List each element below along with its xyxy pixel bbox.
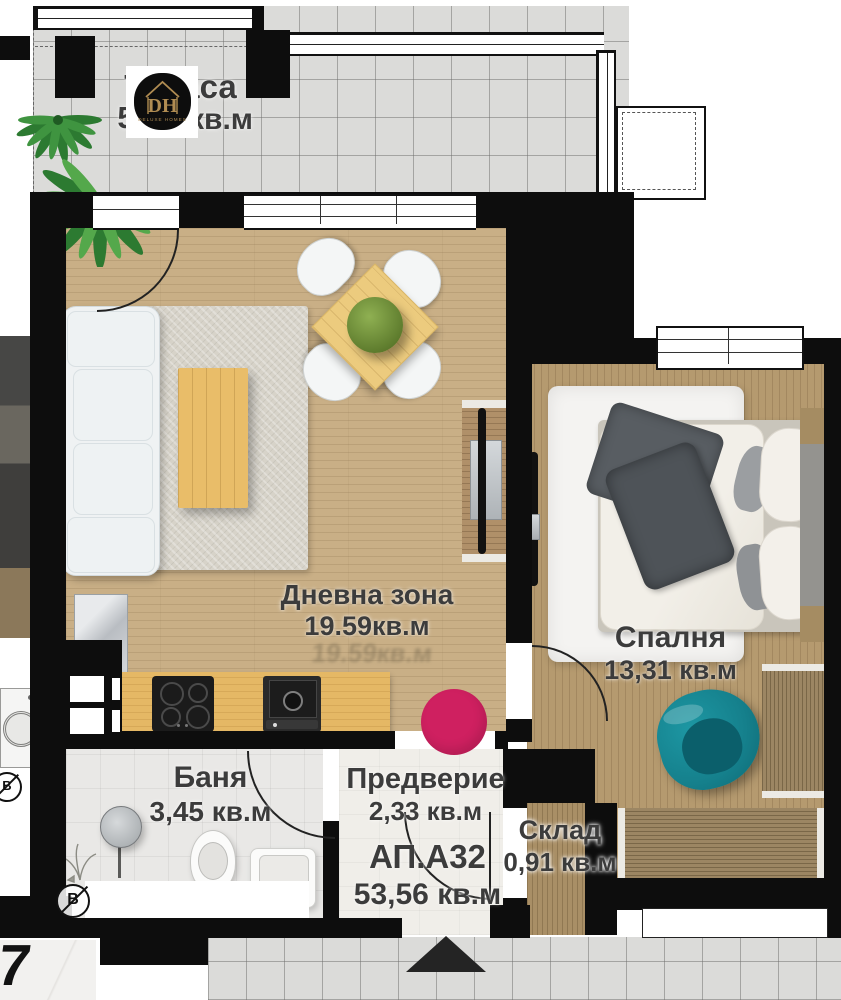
sofa-cushion (73, 443, 153, 515)
floor-plan: В В Тераса 5 кв.м Дневна зона 19.59кв.м … (0, 0, 841, 1000)
wall-bath-bottom (30, 918, 402, 938)
wardrobe-cap (762, 791, 824, 798)
window-mullion (396, 196, 397, 224)
console-cap (462, 400, 508, 408)
tv-screen (478, 408, 486, 554)
entry-name: Предверие (333, 762, 518, 796)
coffee-table (178, 368, 248, 508)
tv-bracket (470, 440, 502, 520)
shaft-slot (112, 678, 120, 700)
window-mullion (728, 328, 729, 364)
bottom-window-strip (642, 908, 828, 938)
neighbor-terrace-dashed (622, 112, 696, 190)
terrace-railing-mid (258, 32, 604, 56)
burner (186, 705, 210, 729)
bedroom-area: 13,31 кв.м (568, 655, 773, 687)
boiler-symbol-icon: В (56, 884, 90, 918)
wardrobe-bottom (618, 808, 824, 880)
kitchen-sink-unit (263, 676, 321, 732)
edge-wall-stub (0, 36, 30, 60)
cooktop (152, 676, 214, 732)
living-window (244, 194, 476, 230)
unit-dot (273, 723, 277, 727)
terrace-railing-right (596, 50, 616, 199)
bedroom-window (656, 326, 804, 370)
neighbor-floor-sliver (0, 568, 30, 638)
neighbor-room-sliver (0, 336, 30, 568)
logo-initials: DH (148, 95, 178, 117)
living-room-name: Дневна зона (262, 578, 472, 611)
cooktop-knob (177, 724, 180, 727)
living-room-label: Дневна зона 19.59кв.м (262, 578, 472, 643)
burner (188, 683, 208, 703)
bedroom-name: Спалня (568, 620, 773, 655)
lower-terrace-floor (208, 937, 841, 1000)
wall-bedroom-bottom (617, 878, 829, 910)
apartment-total-area: 53,56 кв.м (330, 877, 525, 912)
cooktop-knob (185, 724, 188, 727)
sofa-armrest (67, 311, 155, 367)
wall-storage-top (527, 749, 595, 803)
shaft-opening (70, 676, 104, 702)
burner (160, 682, 184, 706)
bath-label: Баня 3,45 кв.м (118, 760, 303, 828)
logo-graphic: DH DELUXE HOMES (126, 66, 198, 138)
boiler-symbol-icon: В (0, 772, 22, 802)
shaft-opening (70, 708, 104, 734)
terrace-railing-top (33, 6, 262, 30)
deluxe-homes-logo: DH DELUXE HOMES (126, 66, 198, 138)
wall-bottom-chunk (100, 937, 208, 965)
logo-name: DELUXE HOMES (138, 117, 187, 122)
wardrobe-cap (817, 808, 824, 880)
bedroom-label: Спалня 13,31 кв.м (568, 620, 773, 687)
storage-name: Склад (478, 815, 642, 847)
bath-area: 3,45 кв.м (118, 795, 303, 828)
entrance-marker-dot (421, 689, 487, 755)
window-mullion (320, 196, 321, 224)
wall-right (824, 338, 841, 938)
triangle-marker-icon (406, 936, 486, 972)
toilet-seat (198, 842, 228, 880)
bath-name: Баня (118, 760, 303, 795)
console-cap (462, 554, 508, 562)
terrace-door-opening (93, 194, 179, 230)
shaft-slot (112, 710, 120, 732)
storage-area: 0,91 кв.м (478, 847, 642, 878)
wall-left (30, 192, 66, 937)
table-plant-icon (347, 297, 403, 353)
sofa (62, 306, 160, 576)
bath-plant-decor-icon (62, 836, 98, 884)
living-room-area: 19.59кв.м (262, 611, 472, 643)
armchair-seat (676, 712, 747, 780)
sink-drain (283, 691, 303, 711)
bedroom-door-opening (506, 643, 532, 719)
storage-label: Склад 0,91 кв.м (478, 815, 642, 878)
sofa-cushion (73, 369, 153, 441)
sofa-armrest (67, 517, 155, 573)
